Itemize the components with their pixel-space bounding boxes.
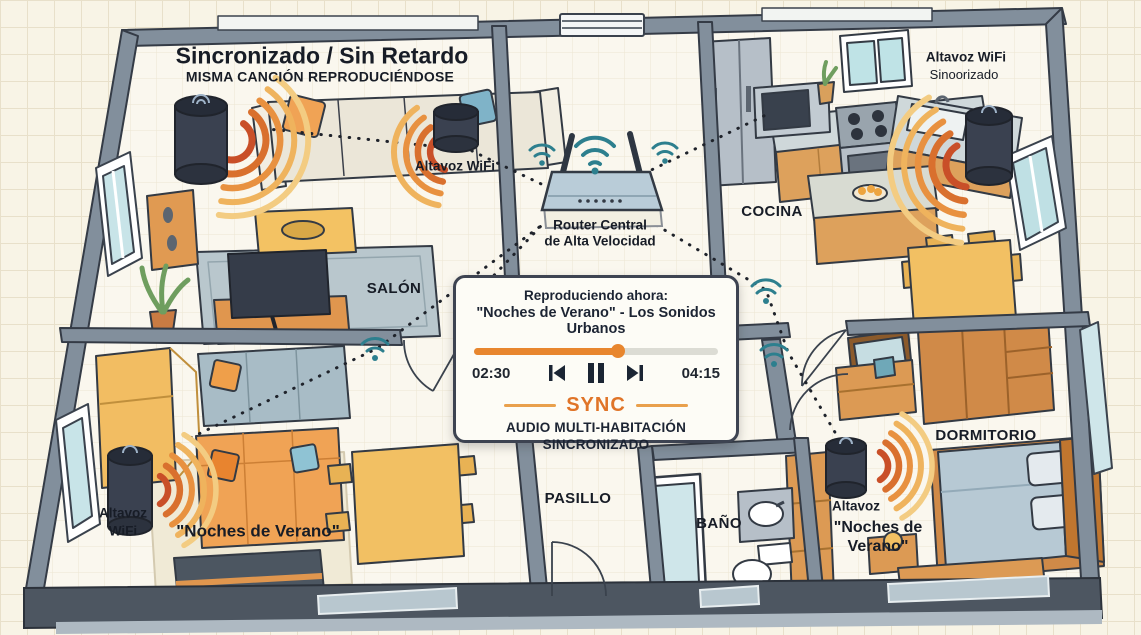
track-title: "Noches de Verano" - Los Sonidos Urbanos	[470, 305, 722, 337]
progress-fill	[474, 348, 618, 355]
router-label-line1: Router Central	[553, 219, 647, 234]
next-button[interactable]	[624, 362, 646, 384]
elapsed-time: 02:30	[472, 365, 510, 382]
sync-divider-left	[504, 404, 556, 407]
total-time: 04:15	[682, 365, 720, 382]
mode-line2: SINCRONIZADO	[470, 437, 722, 454]
previous-button[interactable]	[546, 362, 568, 384]
room-label-salon: SALÓN	[367, 281, 422, 298]
speaker-label-bedroom: Altavoz	[832, 500, 880, 515]
floorplan-illustration: Sincronizado / Sin Retardo MISMA CANCIÓN…	[0, 0, 1141, 635]
pause-icon	[584, 361, 608, 385]
room-label-bano: BAÑO	[696, 516, 742, 533]
subheadline: MISMA CANCIÓN REPRODUCIÉNDOSE	[186, 69, 454, 84]
sync-badge: SYNC	[566, 394, 626, 417]
mode-line1: AUDIO MULTI-HABITACIÓN	[470, 420, 722, 437]
speaker-sublabel-kitchen: Sinoorizado	[930, 68, 999, 82]
speaker-label-left-line1: Altavoz	[99, 507, 147, 522]
speaker-left-room	[108, 446, 152, 535]
speaker-living-top	[434, 104, 478, 152]
progress-knob[interactable]	[611, 344, 625, 358]
room-label-dormitorio: DORMITORIO	[935, 428, 1036, 445]
router-label-line2: de Alta Velocidad	[544, 235, 655, 250]
playback-controls	[546, 361, 646, 385]
speaker-label-kitchen: Altavoz WiFi	[926, 51, 1006, 66]
progress-bar[interactable]	[474, 348, 718, 355]
sync-divider-right	[636, 404, 688, 407]
room-label-pasillo: PASILLO	[545, 491, 612, 508]
speaker-label-living: Altavoz WiFi	[415, 160, 495, 175]
room-label-cocina: COCINA	[741, 204, 803, 221]
song-label-bedroom-line2: Verano"	[848, 538, 909, 556]
pause-button[interactable]	[584, 361, 608, 385]
speaker-living-left	[175, 95, 227, 184]
headline: Sincronizado / Sin Retardo	[176, 43, 469, 68]
now-playing-card: Reproduciendo ahora: "Noches de Verano" …	[453, 275, 739, 443]
speaker-kitchen	[966, 106, 1012, 185]
song-label-left-room: "Noches de Verano"	[176, 523, 340, 542]
now-playing-heading: Reproduciendo ahora:	[470, 288, 722, 303]
next-icon	[624, 362, 646, 384]
previous-icon	[546, 362, 568, 384]
song-label-bedroom-line1: "Noches de	[834, 519, 923, 537]
speaker-bedroom	[826, 438, 866, 498]
speaker-label-left-line2: WiFi	[109, 525, 137, 540]
